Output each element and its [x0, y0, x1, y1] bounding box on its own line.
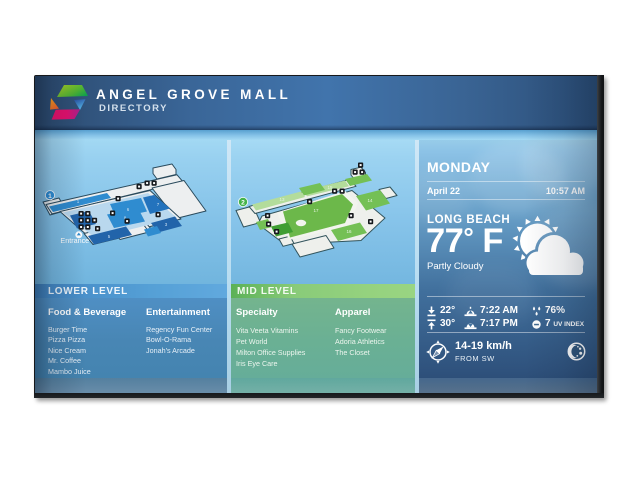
svg-text:14: 14 — [367, 198, 373, 203]
svg-text:1: 1 — [48, 193, 52, 200]
svg-text:Entrance: Entrance — [60, 236, 89, 245]
svg-text:17: 17 — [313, 208, 319, 213]
svg-text:2: 2 — [241, 200, 245, 207]
svg-text:16: 16 — [346, 229, 352, 234]
svg-text:13: 13 — [279, 197, 285, 202]
